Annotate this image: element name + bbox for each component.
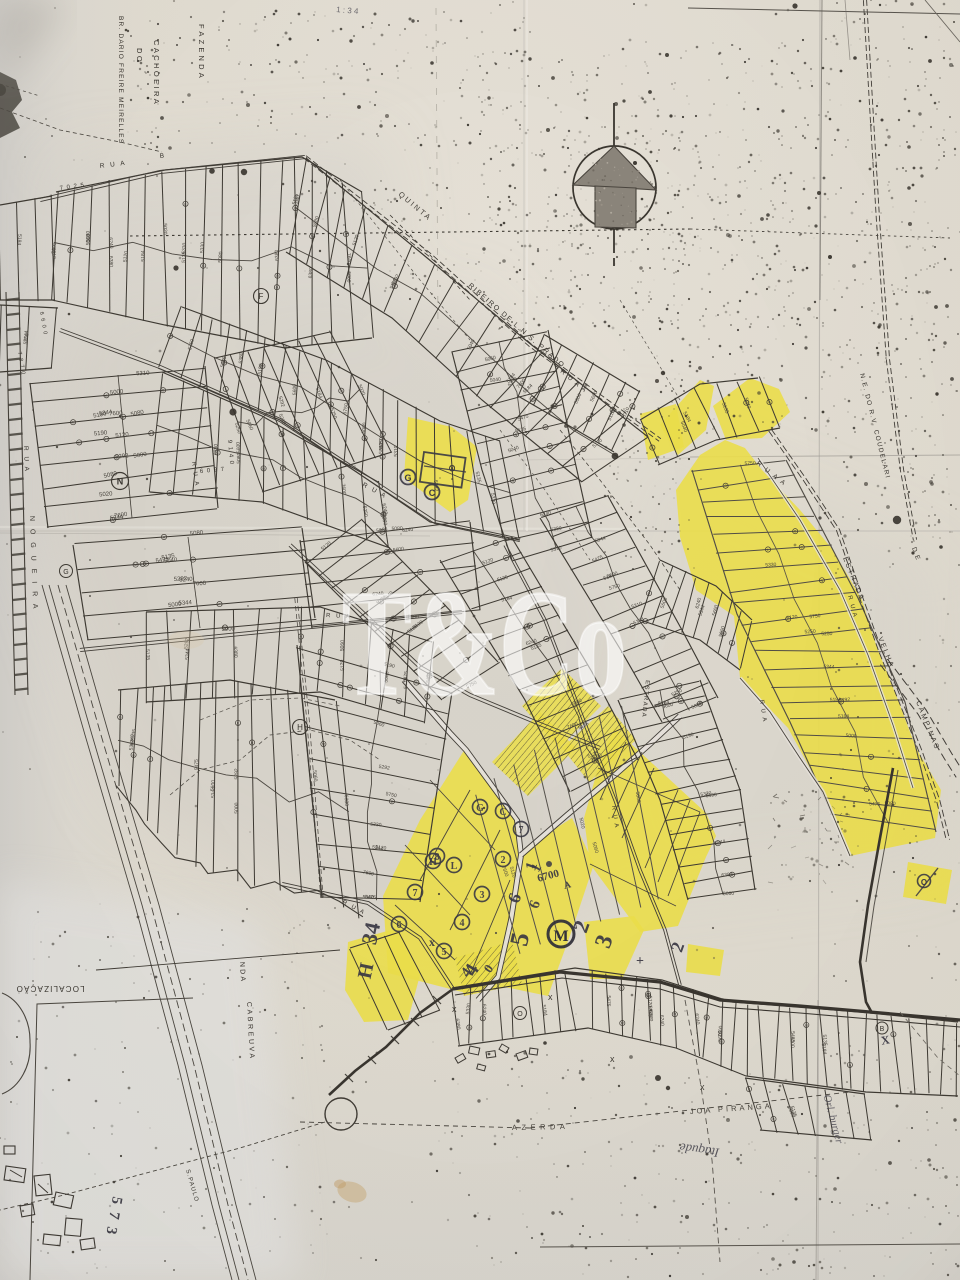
- svg-text:T&Co: T&Co: [342, 559, 627, 727]
